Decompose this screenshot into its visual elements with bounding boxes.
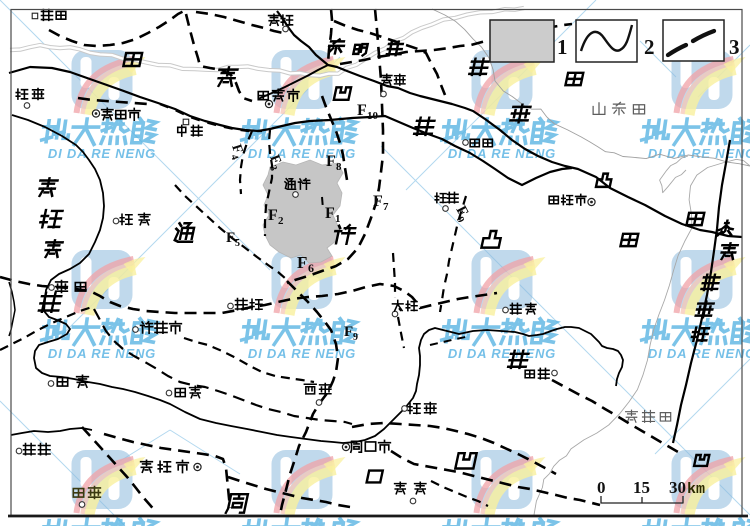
svg-text:6: 6: [308, 261, 314, 275]
svg-text:15: 15: [633, 478, 650, 497]
svg-text:0: 0: [597, 478, 606, 497]
svg-text:DI DA RE NENG: DI DA RE NENG: [248, 146, 356, 161]
svg-text:DI DA RE NENG: DI DA RE NENG: [248, 346, 356, 361]
svg-text:DI DA RE NENG: DI DA RE NENG: [448, 146, 556, 161]
svg-text:1: 1: [335, 213, 341, 225]
svg-text:F: F: [357, 102, 367, 119]
svg-text:DI DA RE NENG: DI DA RE NENG: [48, 346, 156, 361]
svg-text:5: 5: [235, 238, 240, 249]
svg-text:9: 9: [353, 332, 358, 343]
svg-text:DI DA RE NENG: DI DA RE NENG: [648, 146, 750, 161]
svg-text:3: 3: [729, 35, 740, 59]
svg-text:1: 1: [557, 35, 568, 59]
svg-text:F: F: [297, 253, 307, 272]
svg-text:7: 7: [383, 201, 389, 213]
svg-text:F: F: [226, 230, 235, 246]
svg-text:30: 30: [669, 478, 686, 497]
svg-text:F: F: [373, 193, 383, 210]
svg-text:F: F: [268, 207, 278, 224]
svg-text:DI DA RE NENG: DI DA RE NENG: [48, 146, 156, 161]
svg-text:DI DA RE NENG: DI DA RE NENG: [648, 346, 750, 361]
svg-text:DI DA RE NENG: DI DA RE NENG: [448, 346, 556, 361]
svg-text:F: F: [325, 205, 335, 222]
svg-text:10: 10: [367, 110, 379, 122]
svg-text:F: F: [326, 153, 336, 170]
svg-text:F: F: [344, 324, 353, 340]
svg-text:8: 8: [336, 161, 342, 173]
svg-text:km: km: [687, 481, 705, 498]
svg-text:2: 2: [278, 215, 284, 227]
svg-text:2: 2: [644, 35, 655, 59]
